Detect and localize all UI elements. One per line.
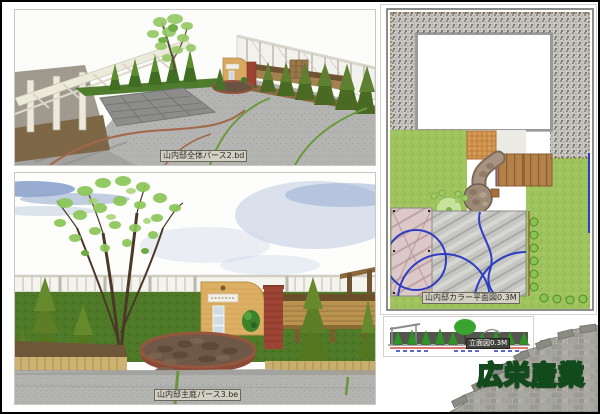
emblem: [221, 286, 226, 291]
red-brick-pillar: [264, 287, 283, 349]
fence: [15, 275, 375, 293]
caption-color-plan: 山内邸カラー平面図0.3M: [422, 292, 520, 304]
presentation-board: 山内邸全体パース2.bd: [0, 0, 600, 414]
caption-elevation: 立面図0.3M: [466, 338, 510, 349]
shrub: [242, 310, 260, 332]
color-plan-drawing: [386, 8, 594, 311]
perspective-overall-render: [15, 10, 375, 165]
house-footprint: [417, 34, 551, 130]
perspective-main-render: [15, 173, 375, 404]
company-logo-text: 広栄産業: [477, 355, 585, 392]
panel-color-plan: 山内邸カラー平面図0.3M: [380, 4, 597, 315]
panel-perspective-main-garden: 山内邸主庭パース3.be: [14, 172, 376, 405]
caption-perspective-main: 山内邸主庭パース3.be: [154, 389, 241, 401]
glass-blocks: [213, 306, 224, 334]
caption-perspective-overall: 山内邸全体パース2.bd: [160, 150, 247, 162]
panel-perspective-overall: 山内邸全体パース2.bd: [14, 9, 376, 166]
